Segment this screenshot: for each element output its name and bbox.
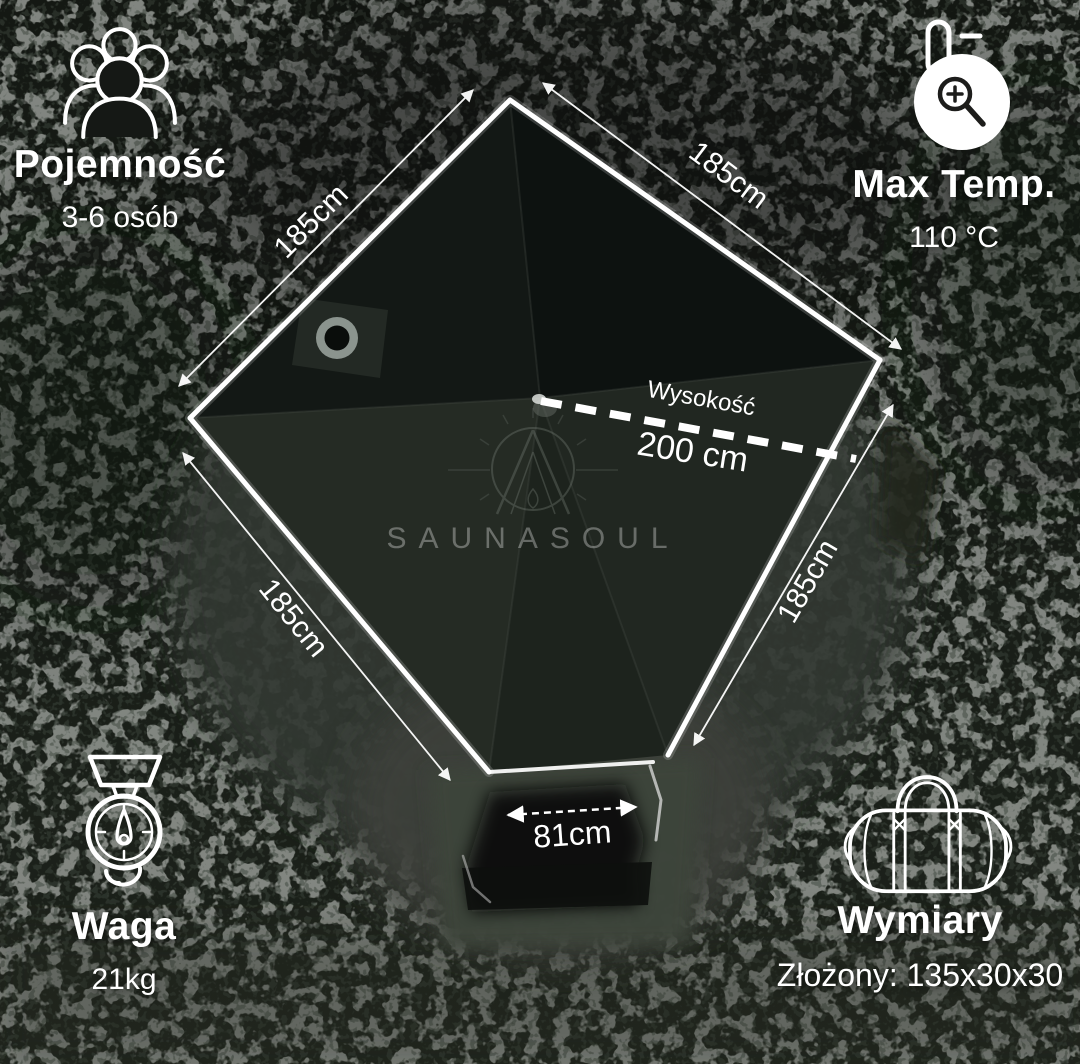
- capacity-title: Pojemność: [8, 145, 232, 186]
- dimensions-title: Wymiary: [770, 901, 1070, 942]
- zoom-button[interactable]: [914, 54, 1010, 150]
- max-temp-title: Max Temp.: [842, 165, 1066, 206]
- thermometer-magnifier-icon: [904, 12, 1024, 165]
- weight-value: 21kg: [12, 963, 236, 997]
- label-door-width: 81cm: [532, 813, 613, 854]
- stove-jack: [292, 298, 388, 378]
- duffel-bag-icon: [838, 758, 1018, 901]
- infographic-root: SAUNASOUL 185cm 185cm 185cm 185cm Wysoko…: [0, 0, 1080, 1064]
- dimensions-value: Złożony: 135x30x30: [770, 957, 1070, 994]
- feature-max-temp: Max Temp. 110 °C: [842, 12, 1066, 255]
- max-temp-value: 110 °C: [842, 221, 1066, 255]
- feature-dimensions: Wymiary Złożony: 135x30x30: [770, 758, 1070, 994]
- feature-capacity: Pojemność 3-6 osób: [8, 22, 232, 235]
- hanging-scale-icon: [63, 750, 185, 907]
- weight-title: Waga: [12, 907, 236, 948]
- capacity-value: 3-6 osób: [8, 201, 232, 235]
- brand-watermark-text: SAUNASOUL: [386, 522, 679, 555]
- people-group-icon: [57, 22, 183, 145]
- feature-weight: Waga 21kg: [12, 750, 236, 997]
